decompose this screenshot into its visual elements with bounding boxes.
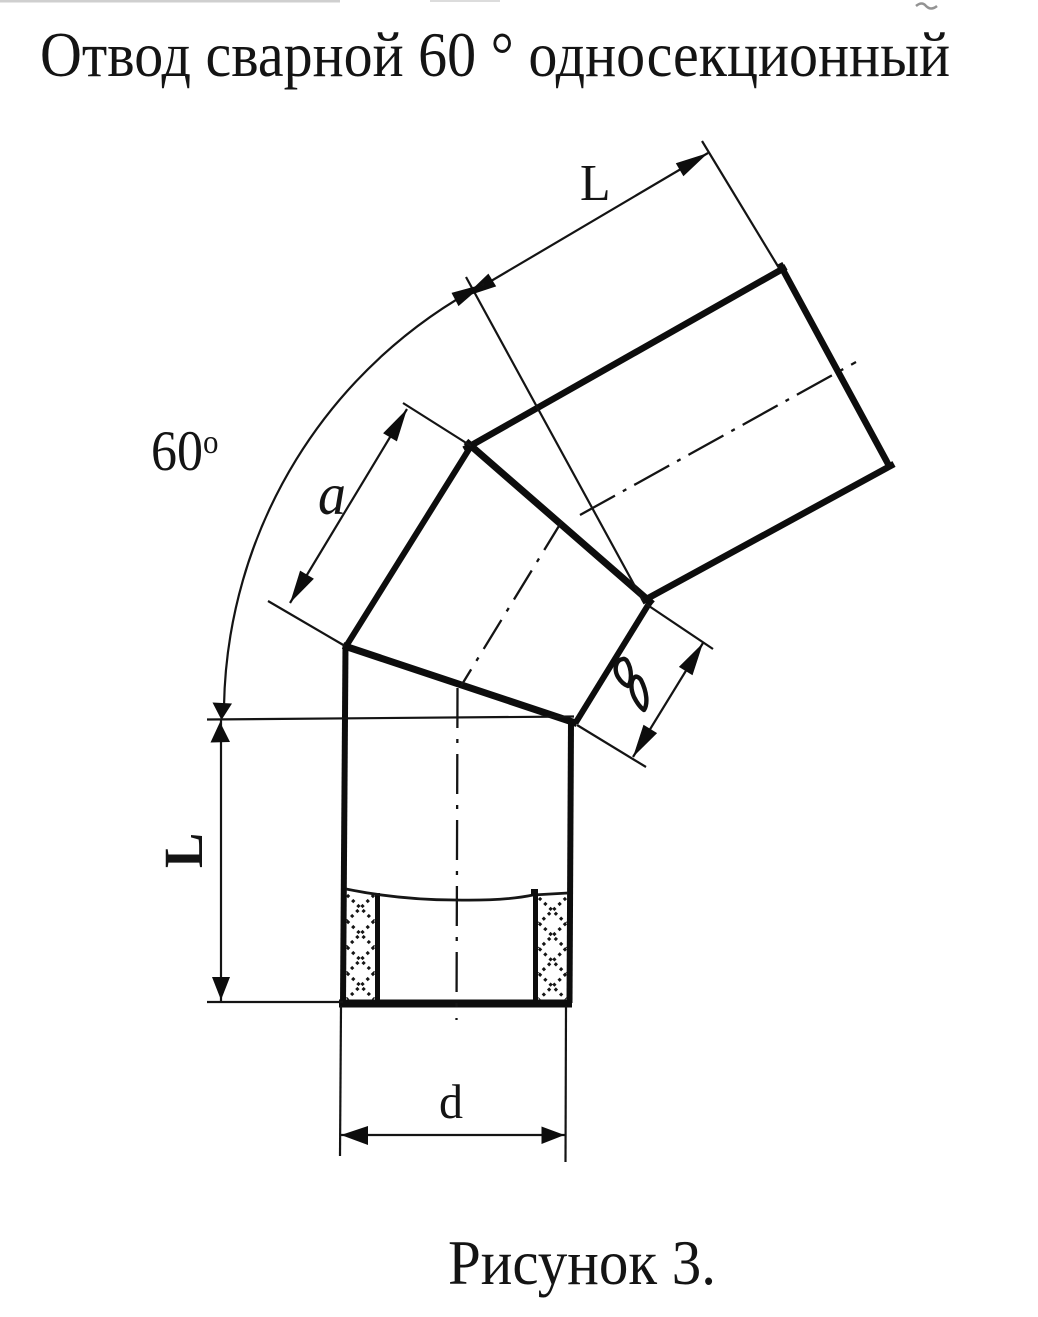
svg-text:Рисунок 3.: Рисунок 3.: [448, 1228, 716, 1299]
svg-text:L: L: [580, 154, 611, 211]
svg-text:Отвод сварной 60 ° односекцион: Отвод сварной 60 ° односекционный: [40, 21, 950, 91]
svg-text:d: d: [439, 1076, 463, 1130]
svg-text:a: a: [318, 463, 346, 528]
svg-text:L: L: [153, 833, 214, 868]
